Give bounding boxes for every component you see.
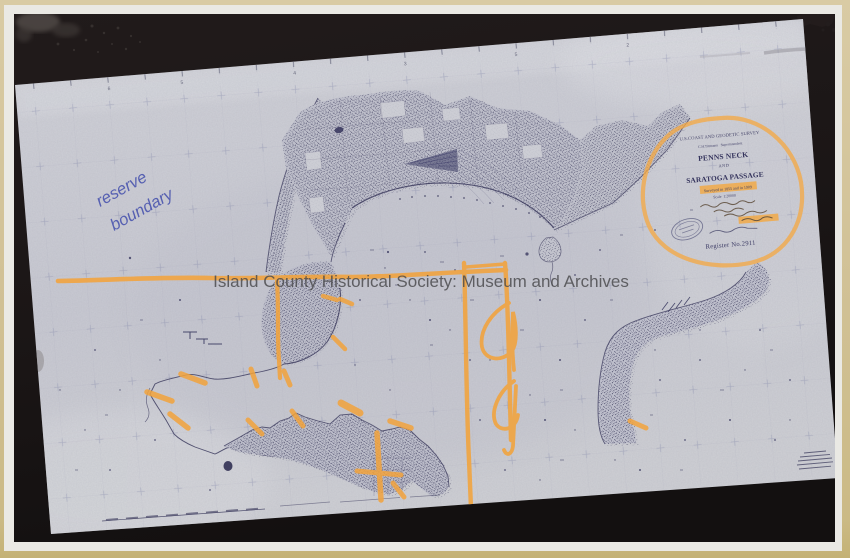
svg-text:AND: AND — [718, 162, 729, 168]
svg-text:Island County Historical Socie: Island County Historical Society: Museum… — [213, 272, 629, 291]
